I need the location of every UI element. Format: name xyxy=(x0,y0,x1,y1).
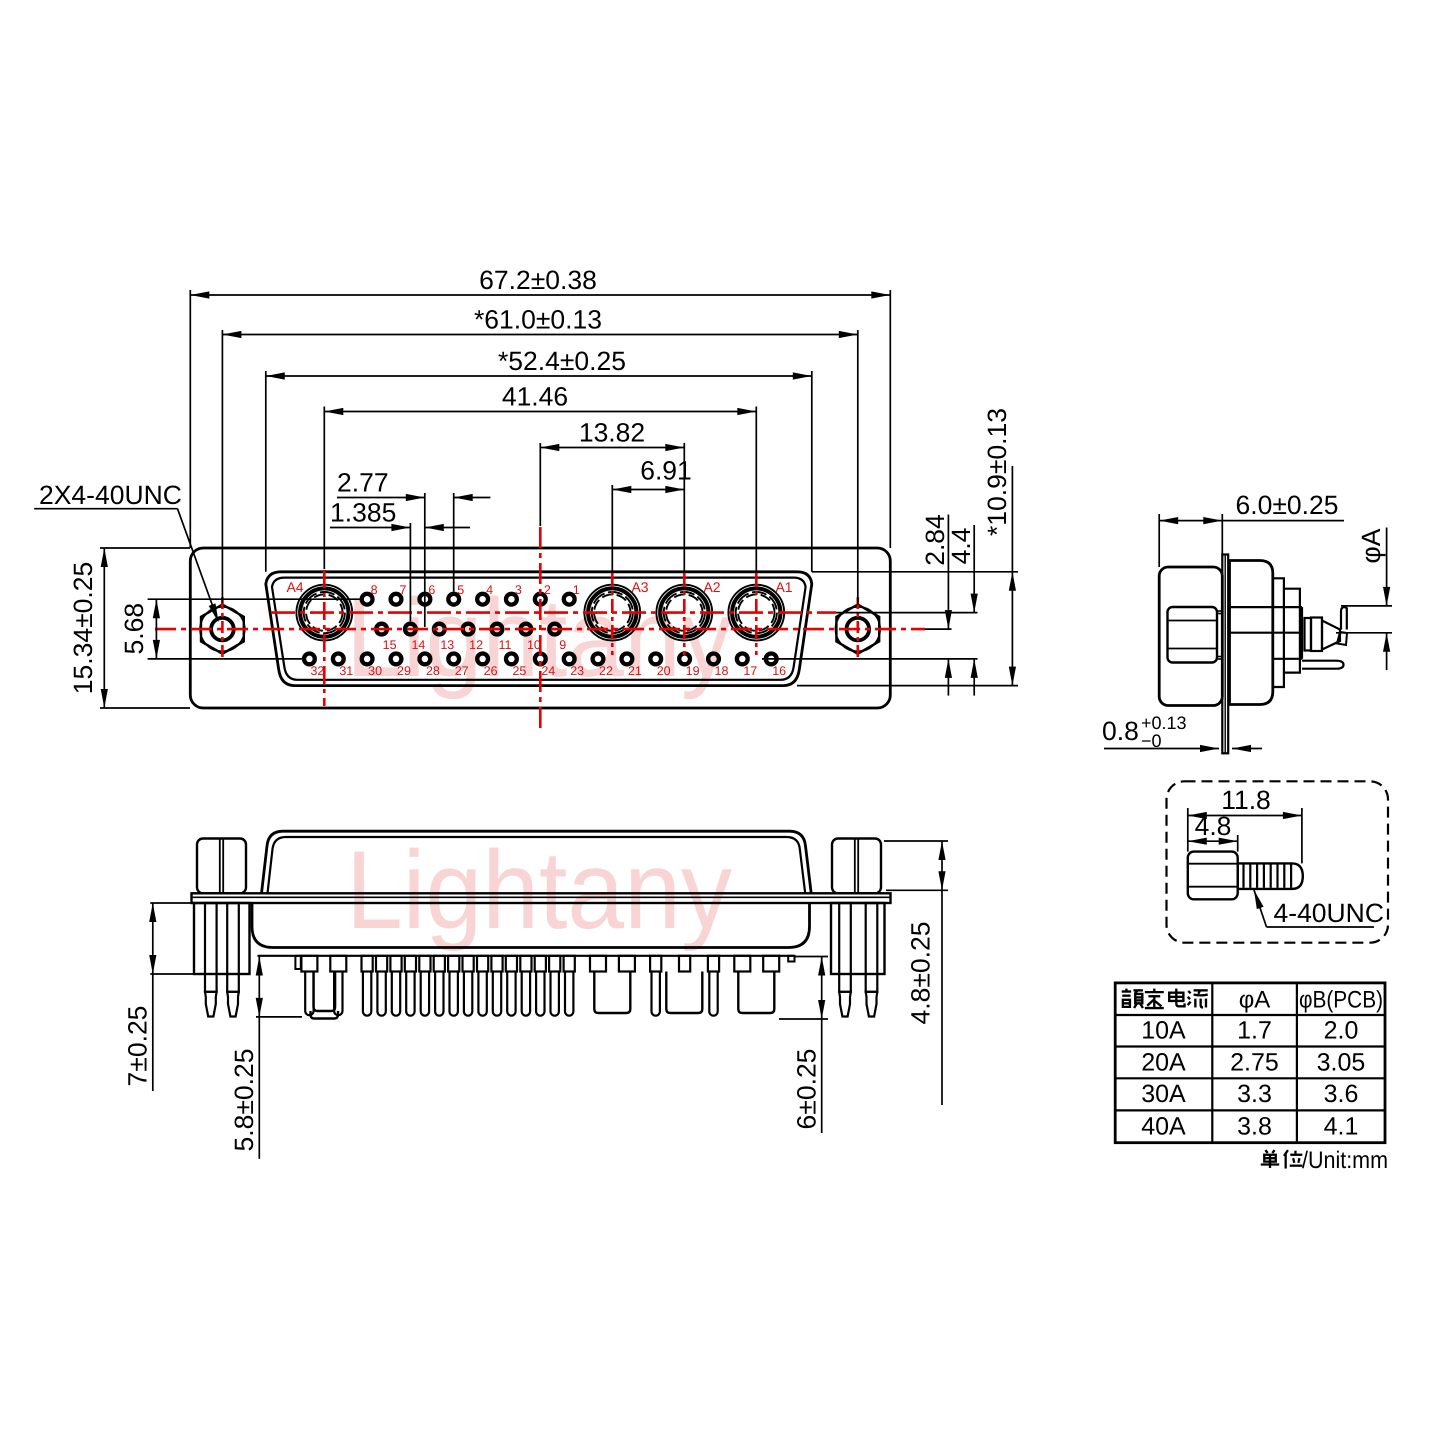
svg-text:0.8: 0.8 xyxy=(1102,716,1139,746)
svg-text:3.6: 3.6 xyxy=(1324,1080,1359,1108)
svg-text:11: 11 xyxy=(499,638,512,652)
svg-text:67.2±0.38: 67.2±0.38 xyxy=(479,265,597,295)
svg-text:Lightany: Lightany xyxy=(346,828,732,952)
svg-text:32: 32 xyxy=(310,664,324,678)
svg-text:20: 20 xyxy=(657,664,671,678)
svg-text:30: 30 xyxy=(368,664,382,678)
svg-text:20A: 20A xyxy=(1141,1048,1186,1076)
svg-text:14: 14 xyxy=(411,638,425,652)
svg-text:2.77: 2.77 xyxy=(337,468,389,498)
svg-text:23: 23 xyxy=(570,664,584,678)
svg-text:+0.13: +0.13 xyxy=(1141,713,1187,733)
svg-text:17: 17 xyxy=(743,664,757,678)
svg-text:26: 26 xyxy=(484,664,498,678)
svg-text:6.91: 6.91 xyxy=(640,456,692,486)
svg-text:A3: A3 xyxy=(631,579,648,595)
svg-text:6: 6 xyxy=(428,583,435,597)
svg-text:3: 3 xyxy=(515,583,522,597)
svg-text:*52.4±0.25: *52.4±0.25 xyxy=(498,346,626,376)
svg-text:5.8±0.25: 5.8±0.25 xyxy=(229,1049,259,1152)
svg-text:9: 9 xyxy=(559,638,566,652)
svg-text:4.1: 4.1 xyxy=(1324,1112,1359,1140)
svg-text:3.8: 3.8 xyxy=(1237,1112,1272,1140)
svg-text:6±0.25: 6±0.25 xyxy=(792,1049,822,1130)
svg-text:27: 27 xyxy=(455,664,469,678)
svg-text:4: 4 xyxy=(486,583,493,597)
svg-text:2: 2 xyxy=(544,583,551,597)
svg-text:10A: 10A xyxy=(1141,1017,1186,1045)
svg-text:13.82: 13.82 xyxy=(579,418,645,448)
svg-text:/Unit:mm: /Unit:mm xyxy=(1302,1147,1388,1174)
svg-text:7±0.25: 7±0.25 xyxy=(123,1006,153,1087)
svg-text:4.4: 4.4 xyxy=(946,528,976,565)
svg-text:4.8±0.25: 4.8±0.25 xyxy=(906,922,936,1025)
svg-text:29: 29 xyxy=(397,664,411,678)
svg-text:A2: A2 xyxy=(703,579,720,595)
svg-text:4-40UNC: 4-40UNC xyxy=(1274,898,1384,928)
svg-text:*10.9±0.13: *10.9±0.13 xyxy=(982,408,1012,536)
svg-text:*61.0±0.13: *61.0±0.13 xyxy=(474,305,602,335)
svg-text:13: 13 xyxy=(440,638,454,652)
svg-text:12: 12 xyxy=(469,638,483,652)
svg-text:A1: A1 xyxy=(775,579,792,595)
svg-text:21: 21 xyxy=(628,664,642,678)
svg-text:24: 24 xyxy=(541,664,555,678)
svg-text:1: 1 xyxy=(573,583,580,597)
svg-text:φA: φA xyxy=(1356,528,1386,563)
svg-text:7: 7 xyxy=(400,583,407,597)
svg-text:16: 16 xyxy=(772,664,786,678)
svg-text:φA: φA xyxy=(1239,987,1271,1014)
svg-text:8: 8 xyxy=(371,583,378,597)
svg-text:φB(PCB): φB(PCB) xyxy=(1299,987,1383,1014)
svg-text:3.05: 3.05 xyxy=(1317,1048,1366,1076)
svg-text:15.34±0.25: 15.34±0.25 xyxy=(68,562,98,694)
svg-text:31: 31 xyxy=(339,664,353,678)
svg-text:A4: A4 xyxy=(286,579,303,595)
svg-text:6.0±0.25: 6.0±0.25 xyxy=(1236,490,1339,520)
svg-text:10: 10 xyxy=(527,638,541,652)
svg-text:28: 28 xyxy=(426,664,440,678)
svg-text:5: 5 xyxy=(457,583,464,597)
svg-text:25: 25 xyxy=(512,664,526,678)
svg-text:4.8: 4.8 xyxy=(1195,811,1232,841)
svg-text:15: 15 xyxy=(383,638,397,652)
svg-text:22: 22 xyxy=(599,664,613,678)
svg-text:3.3: 3.3 xyxy=(1237,1080,1272,1108)
svg-text:19: 19 xyxy=(686,664,700,678)
svg-text:2.75: 2.75 xyxy=(1230,1048,1279,1076)
svg-text:1.7: 1.7 xyxy=(1237,1017,1272,1045)
svg-text:30A: 30A xyxy=(1141,1080,1186,1108)
svg-text:2X4-40UNC: 2X4-40UNC xyxy=(39,480,182,510)
svg-text:5.68: 5.68 xyxy=(119,603,149,655)
svg-text:41.46: 41.46 xyxy=(502,382,568,412)
svg-text:18: 18 xyxy=(715,664,729,678)
svg-text:2.0: 2.0 xyxy=(1324,1017,1359,1045)
svg-text:1.385: 1.385 xyxy=(330,498,396,528)
svg-text:40A: 40A xyxy=(1141,1112,1186,1140)
